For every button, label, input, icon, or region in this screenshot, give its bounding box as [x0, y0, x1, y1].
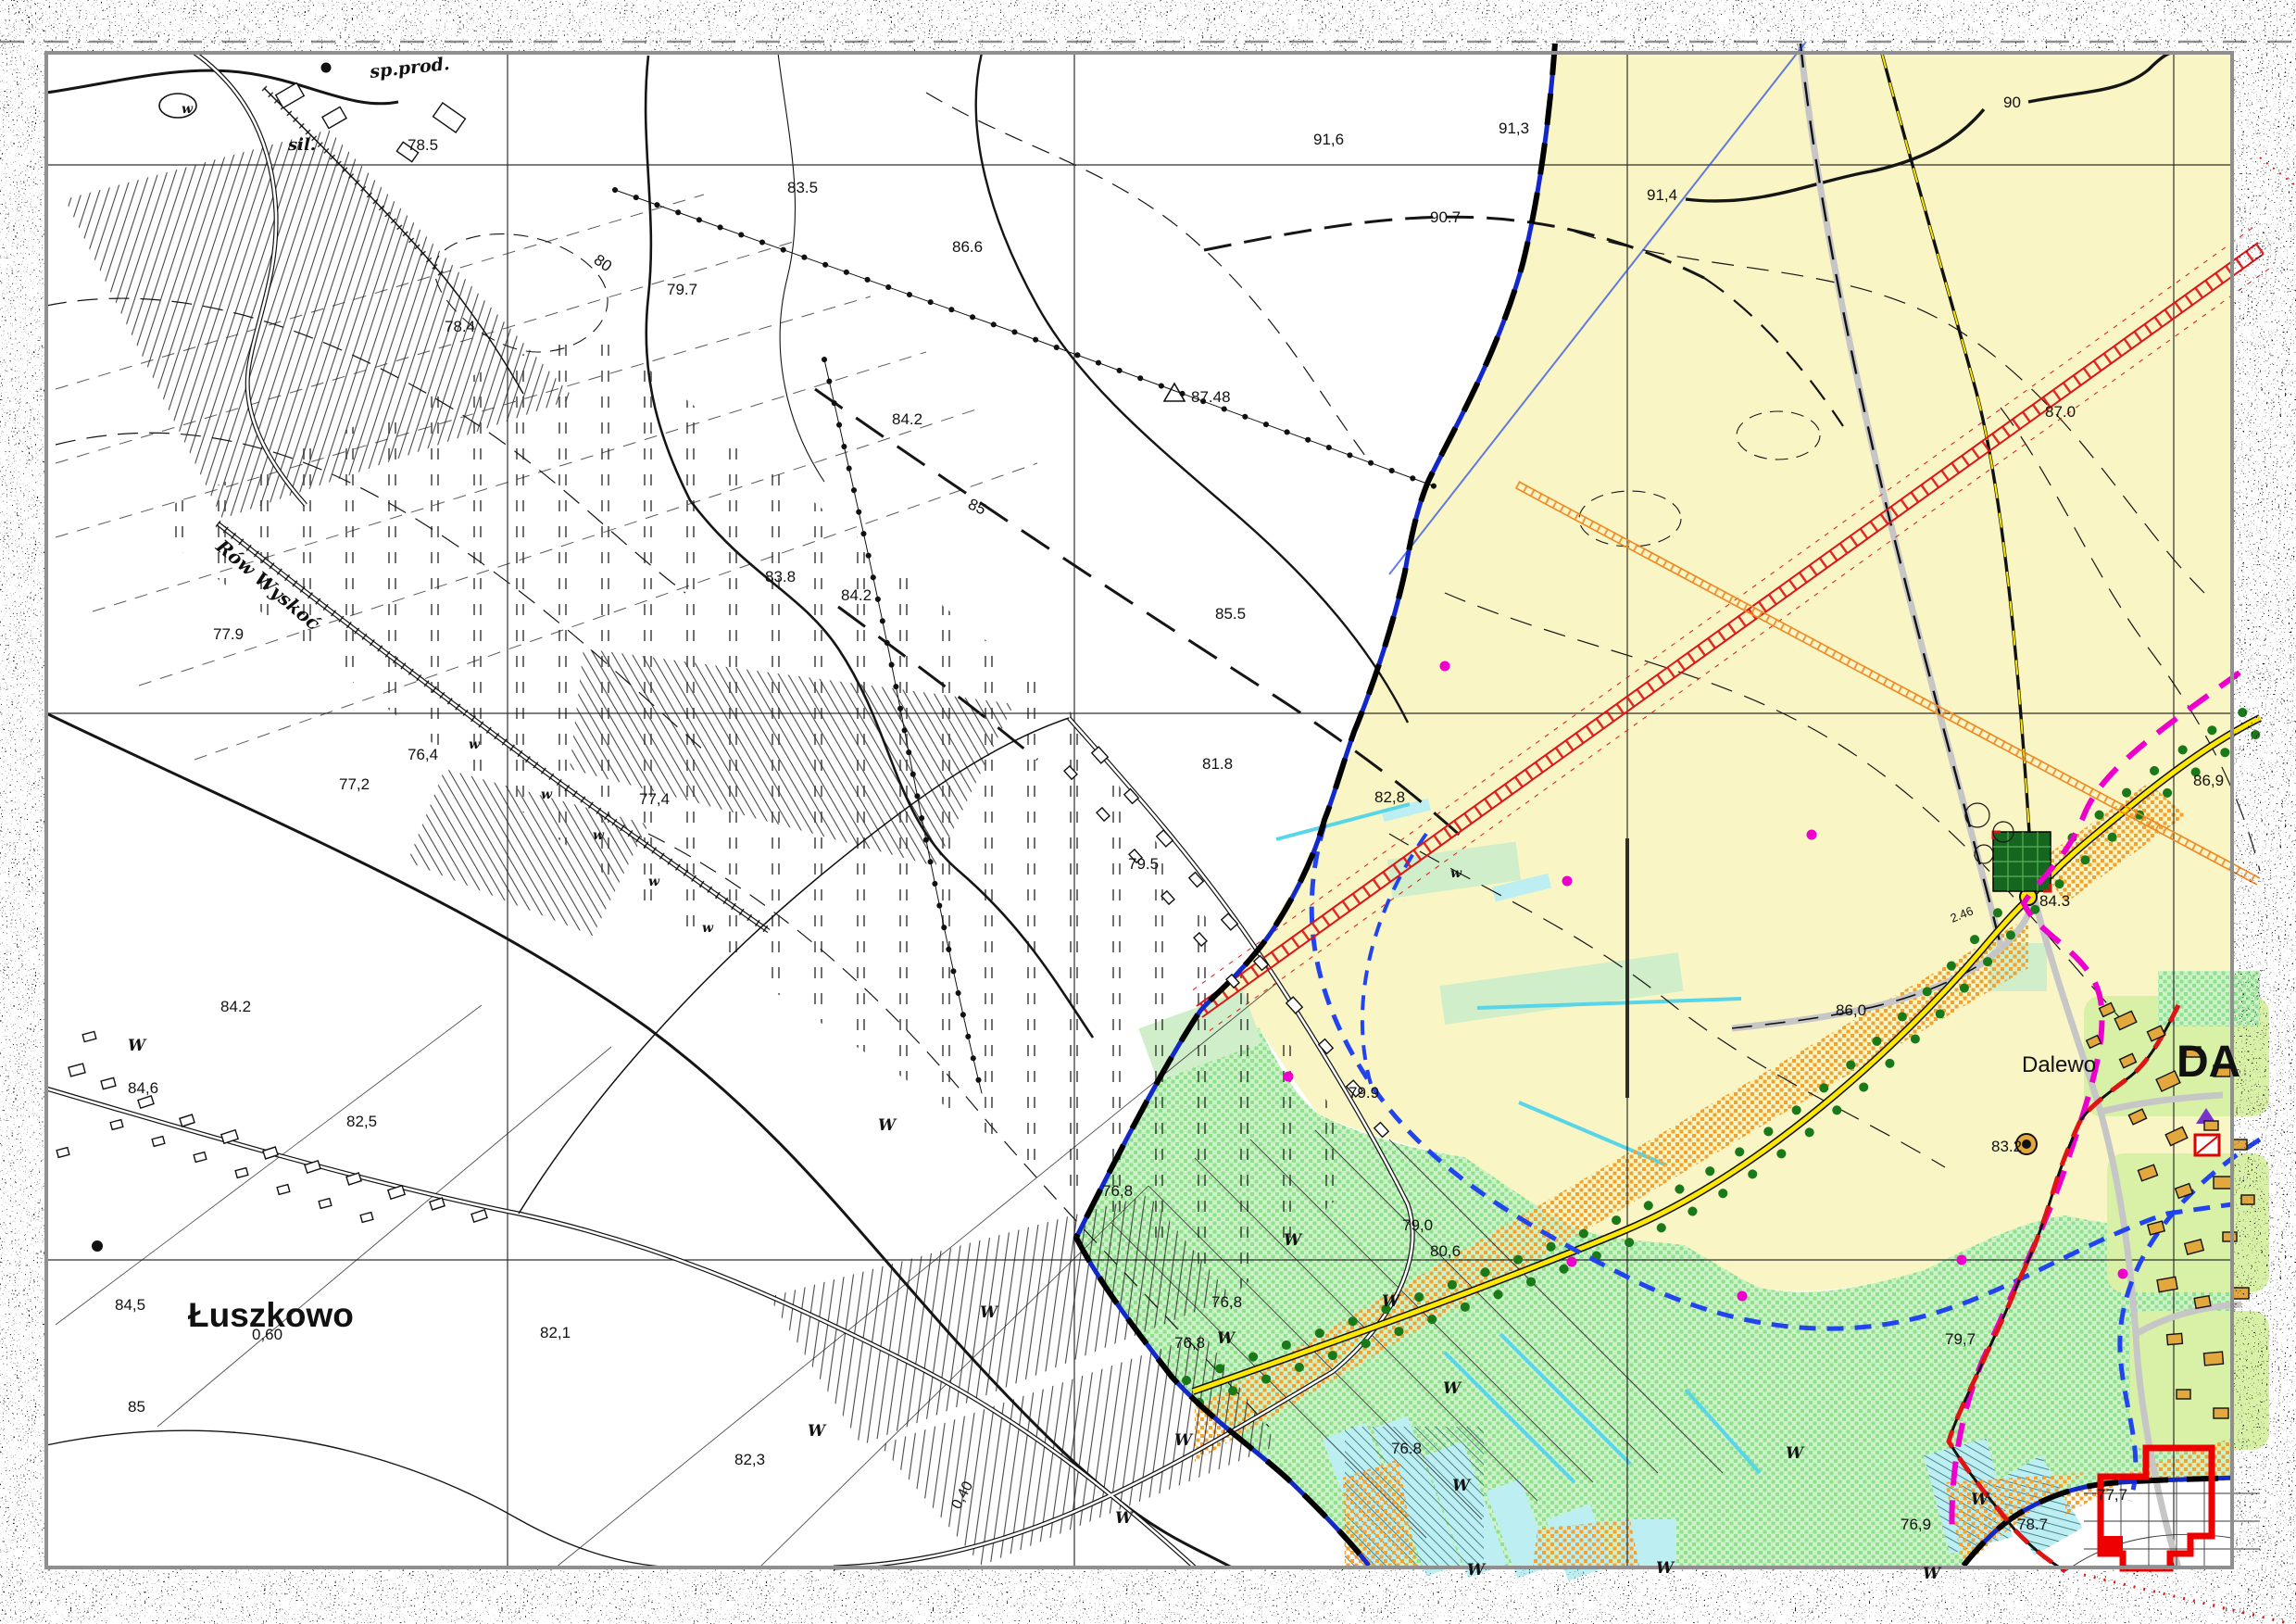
building [2214, 1177, 2232, 1189]
elevation-label: 85 [128, 1398, 145, 1416]
elevation-label: 77.9 [213, 625, 244, 643]
elevation-label: 84,6 [128, 1079, 158, 1097]
place-label: 0,60 [252, 1326, 282, 1343]
elevation-label: 83.8 [765, 568, 796, 585]
church-icon [2195, 1135, 2219, 1155]
elevation-label: 90 [2003, 94, 2021, 111]
building [2203, 1352, 2223, 1366]
elevation-label: 85.5 [1215, 605, 1246, 623]
marsh-w-label: W [808, 1422, 827, 1441]
place-label: Dalewo [2022, 1052, 2096, 1077]
elevation-label: 78.4 [445, 318, 475, 335]
elevation-label: 79.9 [1349, 1084, 1379, 1102]
elevation-label: 82,8 [1374, 788, 1405, 806]
elevation-label: 86.6 [952, 238, 983, 256]
elevation-label: 79,7 [1945, 1330, 1976, 1348]
elevation-label: 76,8 [1174, 1334, 1205, 1352]
marsh-w-label: W [1452, 1477, 1472, 1495]
building [2204, 1121, 2218, 1130]
marsh-w-label: W [1656, 1559, 1675, 1578]
building [2194, 1296, 2211, 1309]
elevation-label: 76,4 [408, 746, 438, 763]
marsh-w-label: w [593, 828, 605, 843]
elevation-label: 79.5 [1128, 855, 1159, 873]
magenta-dot [1567, 1257, 1577, 1267]
magenta-dot [1284, 1072, 1294, 1082]
magenta-dot [2118, 1269, 2128, 1279]
magenta-dot [1440, 661, 1450, 672]
marsh-w-label: W [1786, 1444, 1805, 1463]
marsh-w-label: w [182, 102, 194, 117]
elevation-label: 76,8 [1102, 1182, 1133, 1200]
elevation-label: 87.0 [2045, 403, 2076, 421]
marsh-w-label: W [1174, 1431, 1194, 1450]
elevation-label: 79.7 [667, 281, 697, 298]
marsh-w-label: w [648, 875, 660, 889]
map-viewport[interactable]: 78.583.586.679.778.48087.4884.284.28585.… [0, 0, 2296, 1624]
marsh-w-label: W [128, 1037, 147, 1055]
building [2177, 1390, 2190, 1399]
elevation-label: 82,1 [540, 1324, 571, 1341]
elevation-label: 84.3 [2039, 892, 2070, 910]
marsh-w-label: W [1217, 1329, 1236, 1348]
place-label: sil. [287, 135, 316, 155]
elevation-label: 80,6 [1430, 1242, 1461, 1260]
elevation-label: 78.7 [2017, 1516, 2048, 1533]
windmill-icon [92, 1240, 103, 1252]
magenta-dot [1562, 876, 1573, 887]
magenta-dot [1957, 1255, 1967, 1265]
benchmark-circle-inner [2022, 1139, 2031, 1149]
marsh-w-label: W [1467, 1561, 1487, 1580]
marsh-w-label: w [541, 787, 553, 802]
elevation-label: 77,4 [639, 790, 670, 808]
elevation-label: 91,3 [1499, 120, 1529, 137]
elevation-label: 76,9 [1901, 1516, 1931, 1533]
elevation-label: 91,6 [1313, 131, 1344, 148]
magenta-dot [1738, 1291, 1748, 1302]
elevation-label: 91,4 [1647, 186, 1677, 204]
building [2214, 1408, 2228, 1418]
elevation-label: 86,9 [2193, 772, 2224, 789]
elevation-label: 86,0 [1836, 1001, 1866, 1019]
elevation-label: 77,2 [339, 775, 370, 793]
place-label: DA [2177, 1038, 2240, 1087]
elevation-label: 76,8 [1211, 1293, 1242, 1311]
farm-dot [321, 63, 332, 73]
elevation-label: 81.8 [1202, 755, 1233, 773]
survey-area-filled-square [2099, 1536, 2123, 1555]
elevation-label: 78.5 [408, 136, 438, 154]
marsh-w-label: w [1450, 866, 1462, 881]
marsh-w-label: W [1115, 1509, 1135, 1528]
elevation-label: 90.7 [1430, 208, 1461, 226]
marsh-w-label: W [1971, 1491, 1990, 1509]
elevation-label: 83.5 [787, 179, 818, 196]
elevation-label: 84.2 [892, 410, 922, 428]
elevation-label: 82,3 [734, 1451, 765, 1468]
elevation-label: 84.2 [220, 998, 251, 1015]
elevation-label: 84.2 [841, 586, 872, 604]
marsh-w-label: w [469, 737, 481, 752]
elevation-label: 76.8 [1391, 1440, 1422, 1457]
elevation-label: 87.48 [1191, 388, 1231, 406]
marsh-w-label: W [1923, 1565, 1942, 1583]
marsh-w-label: w [702, 921, 714, 936]
elevation-label: 77,7 [2097, 1486, 2127, 1504]
marsh-w-label: W [1443, 1379, 1462, 1398]
elevation-label: 83.2 [1991, 1138, 2022, 1155]
elevation-label: 84,5 [115, 1296, 145, 1314]
building [2157, 1277, 2177, 1291]
elevation-label: 79,0 [1402, 1216, 1433, 1234]
elevation-label: 82,5 [346, 1113, 377, 1130]
marsh-w-label: W [1382, 1292, 1401, 1311]
marsh-w-label: W [980, 1303, 999, 1322]
marsh-w-label: W [1284, 1231, 1303, 1250]
building [2167, 1333, 2183, 1344]
marsh-w-label: W [878, 1116, 897, 1135]
magenta-dot [1807, 830, 1817, 840]
